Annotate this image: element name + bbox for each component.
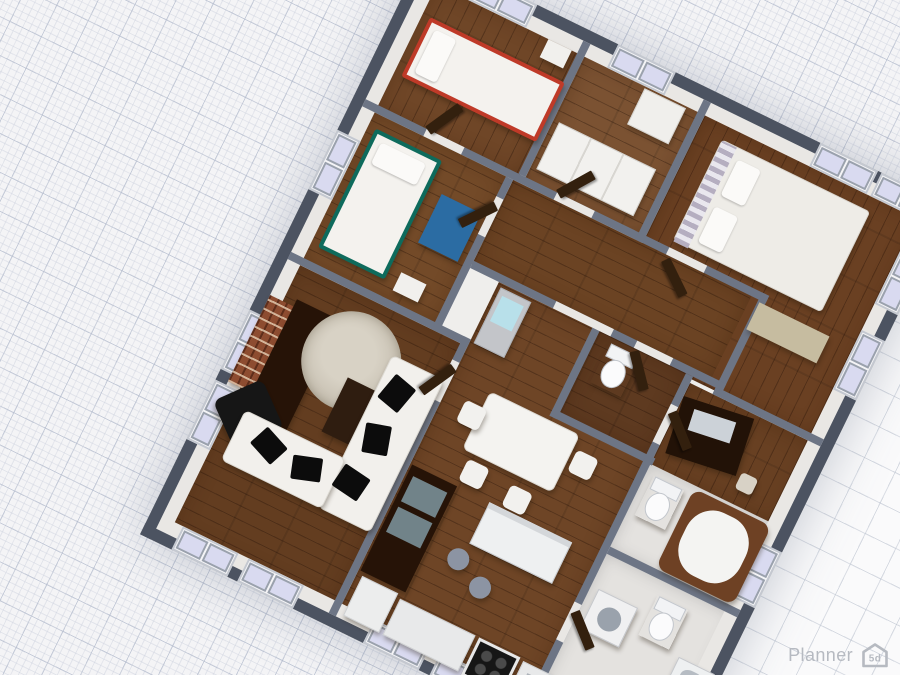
aquarium-glass [490, 296, 524, 332]
pillow [414, 30, 457, 84]
planner5d-house-icon: 5d [860, 642, 890, 669]
cushion-black [361, 422, 392, 456]
sink-basin [676, 667, 705, 675]
bathtub-basin [669, 501, 759, 593]
mirror [688, 409, 737, 444]
washer-door [593, 603, 625, 635]
planner5d-watermark: Planner 5d [788, 642, 890, 669]
watermark-text: Planner [788, 645, 853, 666]
cushion-black [290, 455, 323, 483]
watermark-badge: 5d [869, 654, 881, 665]
editor-canvas[interactable]: Planner 5d [0, 0, 900, 675]
pillow [371, 142, 426, 185]
